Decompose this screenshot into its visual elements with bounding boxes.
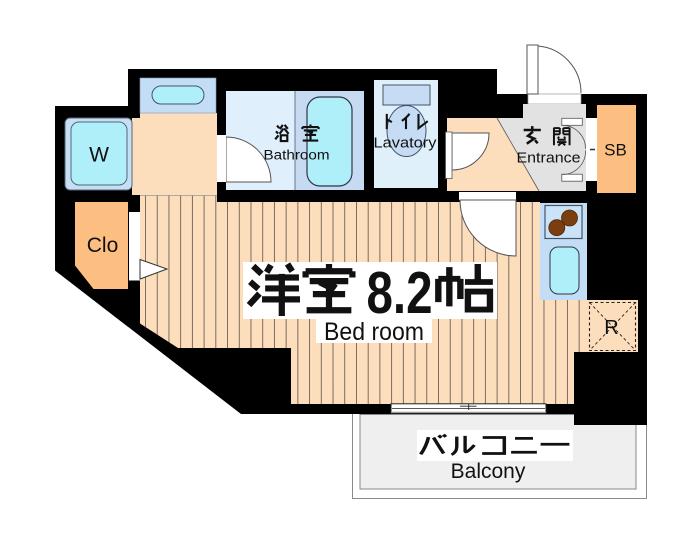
svg-text:Lavatory: Lavatory (374, 135, 438, 152)
svg-text:Entrance: Entrance (517, 150, 581, 167)
svg-text:Clo: Clo (87, 234, 119, 257)
svg-text:8.2: 8.2 (367, 260, 433, 326)
svg-text:R: R (604, 317, 618, 339)
svg-text:Bed room: Bed room (324, 318, 424, 346)
svg-text:SB: SB (604, 141, 627, 160)
svg-text:Bathroom: Bathroom (264, 148, 330, 163)
svg-text:Balcony: Balcony (451, 460, 526, 483)
svg-text:W: W (89, 144, 109, 167)
